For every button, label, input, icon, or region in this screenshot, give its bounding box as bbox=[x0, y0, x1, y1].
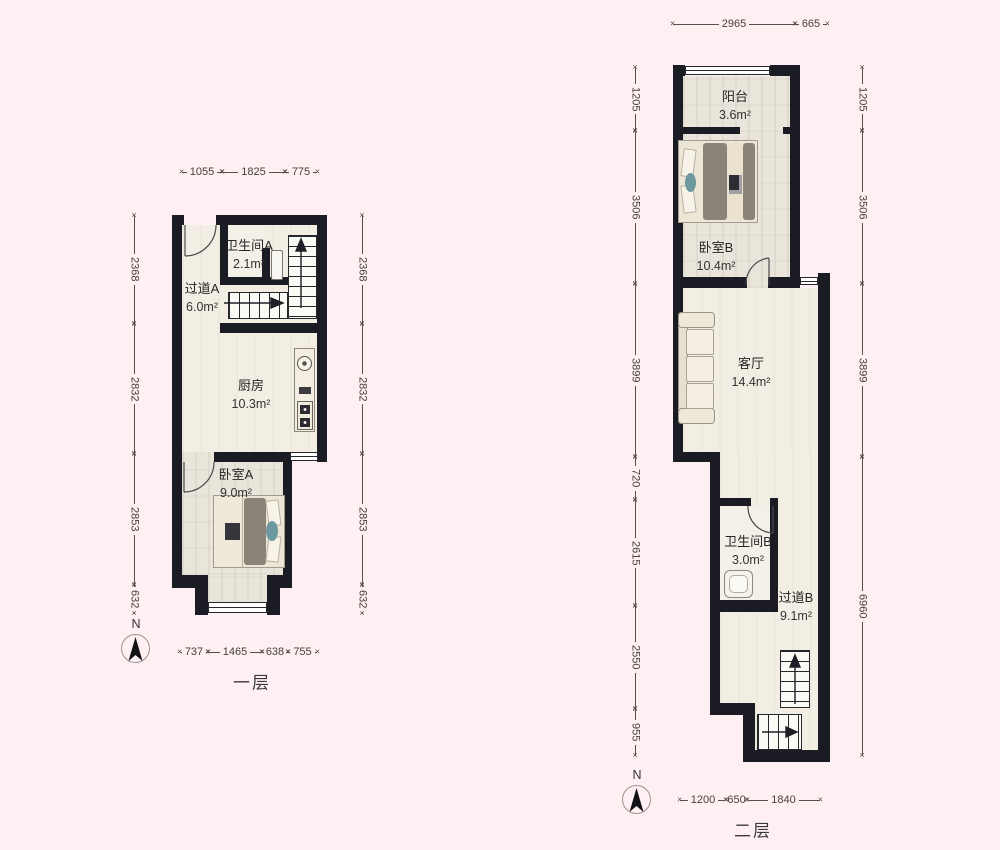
room-area: 2.1m² bbox=[225, 257, 273, 271]
room-name: 过道B bbox=[779, 587, 814, 606]
dim-segment: 2550 bbox=[628, 606, 642, 709]
room-name: 卫生间B bbox=[724, 531, 772, 550]
wall-segment bbox=[720, 498, 751, 506]
kitchen-counter bbox=[294, 348, 315, 432]
room-area: 3.6m² bbox=[719, 108, 751, 122]
stove-burner-icon bbox=[300, 418, 310, 427]
room-label-bathroom-b: 卫生间B 3.0m² bbox=[724, 531, 772, 567]
floor2-title: 二层 bbox=[734, 817, 772, 842]
compass-icon bbox=[622, 785, 651, 814]
dim-segment: 737 bbox=[180, 645, 208, 659]
dimension-chain-f1-right: 2368 2832 2853 632 bbox=[355, 215, 369, 614]
dim-segment: 1825 bbox=[222, 165, 285, 179]
wall-segment bbox=[673, 277, 747, 288]
room-area: 3.0m² bbox=[724, 553, 772, 567]
dim-segment: 2853 bbox=[355, 454, 369, 585]
dim-segment: 2615 bbox=[628, 500, 642, 606]
dim-segment: 3506 bbox=[855, 131, 869, 284]
wall-segment bbox=[818, 273, 830, 762]
dim-label: 6960 bbox=[856, 591, 869, 621]
annotation-overlay bbox=[0, 0, 1000, 850]
floor2-stairs-up-flight bbox=[780, 650, 810, 708]
room-label-hallway-a: 过道A 6.0m² bbox=[185, 278, 220, 314]
dim-label: 2615 bbox=[629, 538, 642, 568]
dim-label: 638 bbox=[263, 646, 287, 659]
dim-label: 737 bbox=[182, 646, 206, 659]
dim-label: 2368 bbox=[356, 254, 369, 284]
floor2-stairs-lower-flight bbox=[757, 714, 802, 750]
room-label-bathroom-a: 卫生间A 2.1m² bbox=[225, 235, 273, 271]
room-area: 9.1m² bbox=[779, 609, 814, 623]
room-area: 10.4m² bbox=[697, 259, 736, 273]
dim-label: 632 bbox=[128, 587, 141, 611]
dim-segment: 2965 bbox=[673, 17, 795, 31]
dim-segment: 2853 bbox=[127, 454, 141, 585]
wall-segment bbox=[267, 575, 280, 615]
dimension-chain-f1-top: 1055 1825 775 bbox=[182, 165, 317, 179]
dim-label: 1465 bbox=[220, 646, 250, 659]
stove-burner-icon bbox=[300, 405, 310, 414]
bed-b-decor bbox=[685, 173, 696, 192]
bed-b-duvet bbox=[703, 143, 727, 220]
wall-segment bbox=[172, 215, 182, 588]
wall-segment bbox=[743, 750, 830, 762]
sofa bbox=[678, 312, 716, 424]
room-name: 过道A bbox=[185, 278, 220, 297]
dim-segment: 720 bbox=[628, 457, 642, 500]
room-name: 客厅 bbox=[732, 353, 771, 372]
dim-label: 3506 bbox=[856, 192, 869, 222]
bed-b-tray-icon bbox=[729, 175, 742, 194]
tv-icon bbox=[225, 523, 240, 540]
dim-label: 3899 bbox=[629, 355, 642, 385]
dimension-chain-f2-bottom: 1200 650 1840 bbox=[680, 793, 820, 807]
dim-label: 2832 bbox=[128, 374, 141, 404]
wall-segment bbox=[743, 703, 755, 750]
dim-label: 1200 bbox=[688, 794, 718, 807]
sofa-cushion bbox=[686, 329, 714, 355]
room-name: 阳台 bbox=[719, 86, 751, 105]
dim-label: 955 bbox=[629, 720, 642, 744]
dim-segment: 1840 bbox=[747, 793, 820, 807]
wall-segment bbox=[768, 277, 800, 288]
window bbox=[290, 452, 318, 461]
bathtub-icon bbox=[724, 570, 753, 598]
dimension-chain-f1-bottom: 737 1465 638 755 bbox=[180, 645, 317, 659]
wall-segment bbox=[710, 600, 778, 612]
room-name: 卫生间A bbox=[225, 235, 273, 254]
dimension-chain-f1-left: 2368 2832 2853 632 bbox=[127, 215, 141, 614]
dim-segment: 1465 bbox=[208, 645, 262, 659]
dim-segment: 2832 bbox=[355, 324, 369, 454]
room-label-living: 客厅 14.4m² bbox=[732, 353, 771, 389]
dim-label: 720 bbox=[629, 466, 642, 490]
dim-segment: 632 bbox=[127, 585, 141, 614]
wall-segment bbox=[216, 215, 327, 225]
dim-segment: 2368 bbox=[355, 215, 369, 324]
wall-segment bbox=[683, 127, 740, 134]
dim-segment: 955 bbox=[628, 709, 642, 756]
wall-segment bbox=[220, 323, 327, 333]
dim-label: 1205 bbox=[629, 84, 642, 114]
dim-segment: 665 bbox=[795, 17, 827, 31]
window bbox=[800, 277, 818, 285]
room-label-hallway-b: 过道B 9.1m² bbox=[779, 587, 814, 623]
kitchen-stove-icon bbox=[297, 401, 313, 430]
room-area: 14.4m² bbox=[732, 375, 771, 389]
wall-segment bbox=[710, 452, 720, 715]
wall-segment bbox=[317, 215, 327, 462]
dim-segment: 1205 bbox=[855, 67, 869, 131]
dim-segment: 3899 bbox=[855, 284, 869, 457]
floorplan-canvas: 过道A 6.0m² 卫生间A 2.1m² 厨房 10.3m² 卧室A 9.0m²… bbox=[0, 0, 1000, 850]
sofa-armrest bbox=[678, 408, 715, 424]
compass-north-label: N bbox=[131, 617, 140, 631]
dim-label: 2550 bbox=[629, 642, 642, 672]
kitchen-appliance-icon bbox=[299, 387, 311, 394]
window bbox=[685, 66, 770, 75]
dim-segment: 775 bbox=[285, 165, 317, 179]
wall-segment bbox=[790, 65, 800, 288]
floor1-title: 一层 bbox=[233, 669, 271, 694]
dim-segment: 3506 bbox=[628, 131, 642, 284]
dim-label: 1055 bbox=[187, 166, 217, 179]
dim-segment: 1055 bbox=[182, 165, 222, 179]
room-label-bedroom-a: 卧室A 9.0m² bbox=[219, 464, 254, 500]
dim-label: 2368 bbox=[128, 254, 141, 284]
dim-segment: 2832 bbox=[127, 324, 141, 454]
bed-b bbox=[678, 140, 758, 223]
dim-segment: 6960 bbox=[855, 457, 869, 756]
dim-segment: 1200 bbox=[680, 793, 726, 807]
room-name: 卧室A bbox=[219, 464, 254, 483]
dim-segment: 755 bbox=[288, 645, 317, 659]
dimension-chain-f2-right: 1205 3506 3899 6960 bbox=[855, 67, 869, 756]
dim-label: 2965 bbox=[719, 18, 749, 31]
dim-label: 2853 bbox=[356, 504, 369, 534]
room-name: 厨房 bbox=[232, 375, 271, 394]
bed-b-duvet bbox=[743, 143, 755, 220]
dim-segment: 632 bbox=[355, 585, 369, 614]
bed-a-decor bbox=[266, 521, 278, 541]
room-area: 6.0m² bbox=[185, 300, 220, 314]
dim-label: 2853 bbox=[128, 504, 141, 534]
dim-label: 1840 bbox=[768, 794, 798, 807]
room-area: 10.3m² bbox=[232, 397, 271, 411]
dim-label: 632 bbox=[356, 587, 369, 611]
floor1-bay-floor bbox=[208, 575, 267, 604]
dim-label: 755 bbox=[290, 646, 314, 659]
floor1-stairs-up-flight bbox=[288, 235, 317, 319]
room-label-bedroom-b: 卧室B 10.4m² bbox=[697, 237, 736, 273]
dim-label: 1205 bbox=[856, 84, 869, 114]
dim-segment: 2368 bbox=[127, 215, 141, 324]
dim-label: 665 bbox=[799, 18, 823, 31]
dimension-chain-f2-left: 1205 3506 3899 720 2615 2550 955 bbox=[628, 67, 642, 756]
room-label-balcony: 阳台 3.6m² bbox=[719, 86, 751, 122]
wall-segment bbox=[214, 452, 288, 462]
bed-a-duvet bbox=[244, 498, 266, 565]
compass-icon bbox=[121, 634, 150, 663]
room-label-kitchen: 厨房 10.3m² bbox=[232, 375, 271, 411]
sofa-cushion bbox=[686, 383, 714, 409]
dim-segment: 3899 bbox=[628, 284, 642, 457]
bathtub-inner bbox=[729, 575, 748, 593]
sofa-armrest bbox=[678, 312, 715, 328]
dim-label: 775 bbox=[289, 166, 313, 179]
compass-north-label: N bbox=[632, 768, 641, 782]
bed-a bbox=[213, 495, 285, 568]
sofa-cushion bbox=[686, 356, 714, 382]
dim-label: 3899 bbox=[856, 355, 869, 385]
dim-segment: 1205 bbox=[628, 67, 642, 131]
dim-label: 1825 bbox=[238, 166, 268, 179]
room-area: 9.0m² bbox=[219, 486, 254, 500]
wall-segment bbox=[783, 127, 790, 134]
room-name: 卧室B bbox=[697, 237, 736, 256]
wall-segment bbox=[195, 575, 208, 615]
dim-label: 2832 bbox=[356, 374, 369, 404]
kitchen-sink-icon bbox=[297, 356, 312, 371]
floor1-stairs-landing-flight bbox=[228, 292, 288, 319]
window bbox=[208, 602, 267, 613]
dim-label: 3506 bbox=[629, 192, 642, 222]
dimension-chain-f2-top: 2965 665 bbox=[673, 17, 827, 31]
